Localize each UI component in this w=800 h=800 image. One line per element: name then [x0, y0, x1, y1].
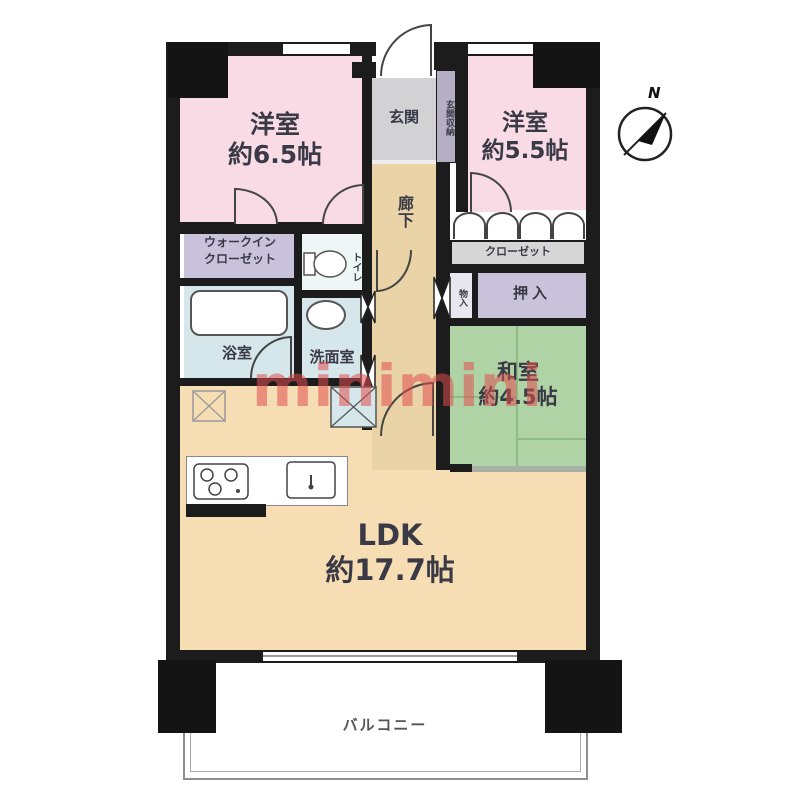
walk-in-closet-line2: クローゼット: [204, 252, 276, 266]
kitchen-sink-icon: [286, 461, 336, 499]
kitchen-counter-edge: [186, 504, 266, 517]
balcony-name: バルコニー: [343, 716, 428, 734]
room-western2-area: 約5.5帖: [482, 138, 569, 164]
wall-top-mid: [350, 42, 376, 56]
washroom-sink: [306, 300, 346, 330]
pillar-top-right: [533, 42, 600, 88]
bathroom-name: 浴室: [222, 344, 252, 362]
monoire-label: 物入: [453, 280, 467, 316]
entrance-step: [372, 160, 436, 164]
closet-door-scallop-3: [519, 212, 552, 239]
room-ldk-area: 約17.7帖: [325, 553, 455, 587]
compass-icon: [612, 96, 682, 166]
compass-north-text: N: [648, 84, 661, 102]
balcony-window-mullion: [263, 655, 517, 657]
watermark: minimini: [252, 352, 543, 420]
closet-door-scallop-4: [552, 212, 585, 239]
window-western1: [283, 42, 350, 56]
room-western1-area: 約6.5帖: [228, 140, 322, 169]
room-ldk-label: LDK 約17.7帖: [300, 518, 480, 588]
floor-plan: 洋室 約6.5帖 洋室 約5.5帖 和室 約4.5帖 LDK 約17.7帖 玄関…: [0, 0, 800, 800]
room-western1-label: 洋室 約6.5帖: [195, 110, 355, 170]
wall-wic-bottom: [180, 278, 300, 286]
room-western2-name: 洋室: [502, 110, 548, 136]
bathtub: [190, 290, 288, 336]
walk-in-closet-label: ウォークイン クローゼット: [186, 234, 294, 268]
entrance-label: 玄関: [374, 108, 434, 126]
entrance-storage-name: 玄関収納: [444, 100, 454, 136]
walk-in-closet-line1: ウォークイン: [204, 235, 276, 249]
hallway-name: 廊下: [395, 195, 414, 229]
room-western1-name: 洋室: [250, 110, 300, 139]
entrance-door-arc: [380, 24, 432, 76]
entrance-storage-label: 玄関収納: [438, 78, 454, 158]
pillar-top-left: [168, 42, 228, 98]
toilet-name: トイレ: [350, 252, 361, 282]
room-ldk-name: LDK: [357, 518, 422, 552]
oshiire-name: 押入: [513, 284, 551, 302]
pillar-bottom-right: [545, 660, 622, 733]
balcony-label: バルコニー: [310, 716, 460, 734]
closet-door-scallop-1: [453, 212, 486, 239]
oshiire-label: 押入: [478, 284, 586, 302]
pillar-bottom-left: [158, 660, 216, 733]
closet-name: クローゼット: [485, 245, 551, 258]
closet-label: クローゼット: [452, 245, 584, 258]
compass-north-label: N: [648, 84, 661, 102]
toilet-label: トイレ: [347, 244, 361, 290]
tatami-line-right: [516, 438, 586, 440]
wall-oshiire-bottom: [450, 318, 586, 326]
monoire-name: 物入: [457, 289, 467, 307]
wall-left: [166, 56, 180, 663]
closet-door-scallop-2: [486, 212, 519, 239]
toilet-icon: [303, 246, 349, 282]
washroom-folding-door-icon: [360, 290, 376, 324]
stove-icon: [193, 463, 249, 500]
monoire-folding-door-icon: [433, 276, 451, 320]
japanese-ldk-boundary-stub: [450, 464, 472, 472]
entrance-name: 玄関: [389, 108, 419, 126]
wall-oshiire-top: [450, 266, 586, 273]
window-western2: [468, 42, 533, 56]
wall-toilet-bottom: [296, 290, 362, 298]
room-western2-label: 洋室 約5.5帖: [455, 110, 595, 165]
pipe-space-icon: [192, 390, 226, 422]
hallway-label: 廊下: [392, 182, 414, 242]
